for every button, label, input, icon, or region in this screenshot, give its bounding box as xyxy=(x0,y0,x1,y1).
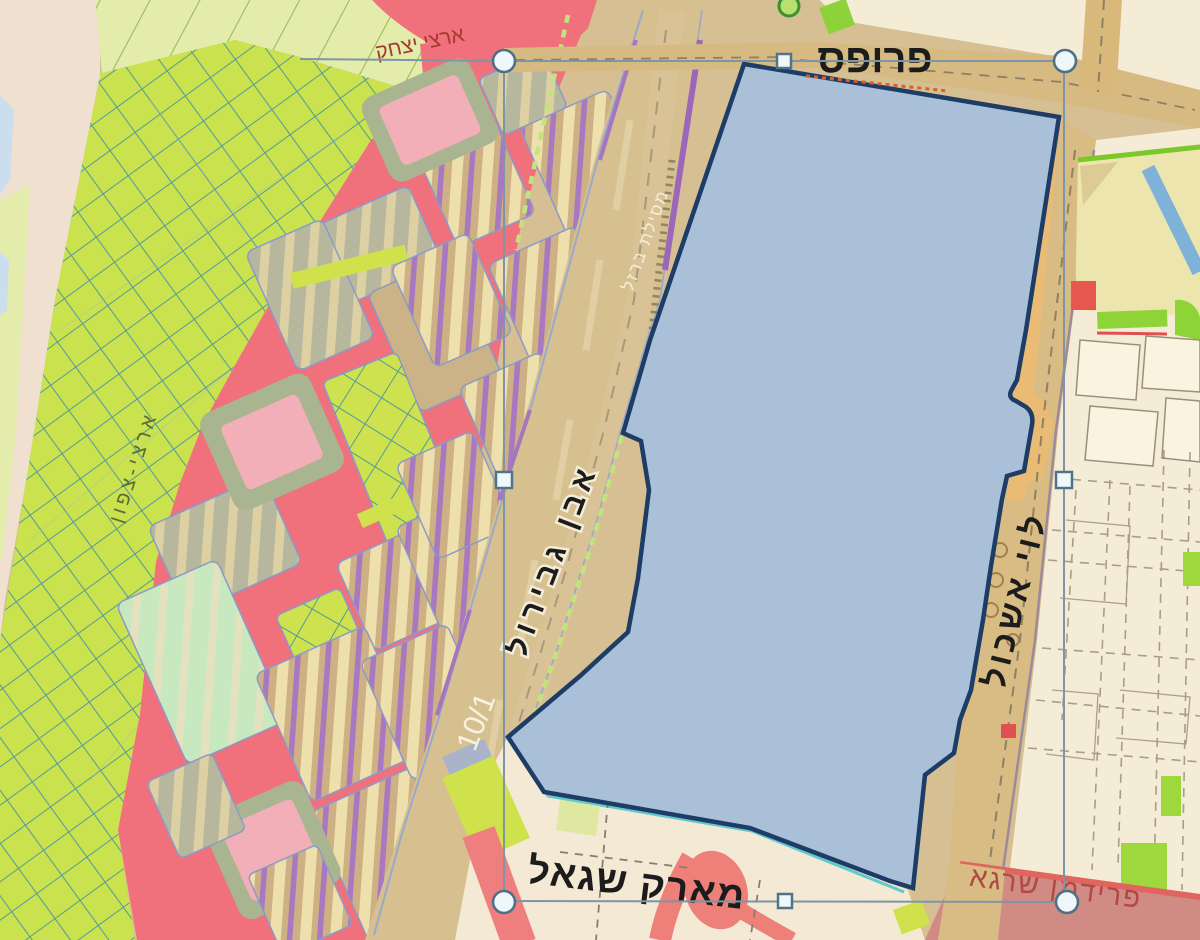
svg-text:פרופס: פרופס xyxy=(817,37,932,81)
